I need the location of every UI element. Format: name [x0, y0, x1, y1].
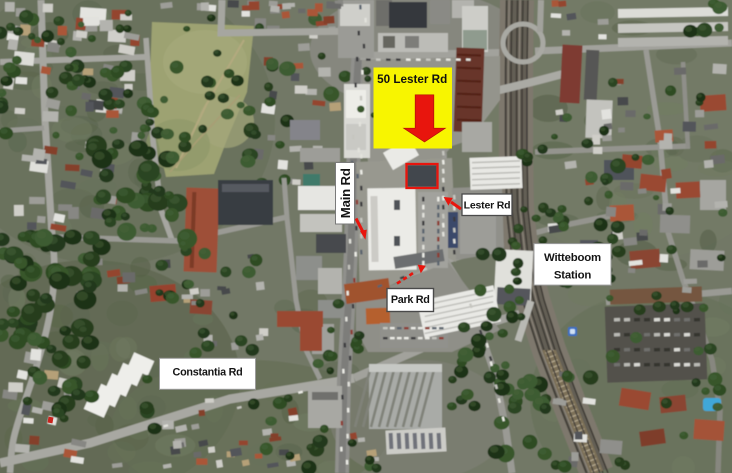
svg-text:Main Rd: Main Rd	[338, 168, 353, 218]
svg-text:Lester Rd: Lester Rd	[464, 200, 511, 212]
svg-text:Park Rd: Park Rd	[391, 294, 430, 306]
svg-text:Station: Station	[554, 269, 591, 281]
svg-text:Constantia Rd: Constantia Rd	[173, 366, 243, 378]
svg-text:Witteboom: Witteboom	[544, 252, 601, 264]
svg-text:50 Lester Rd: 50 Lester Rd	[377, 73, 447, 86]
